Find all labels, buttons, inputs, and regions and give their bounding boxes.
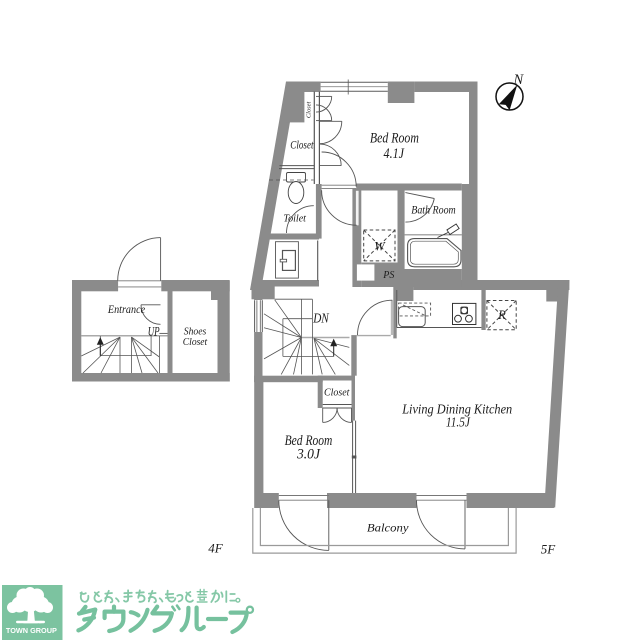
svg-text:Toilet: Toilet	[283, 213, 306, 225]
svg-text:Balcony: Balcony	[367, 523, 410, 535]
svg-text:Bath Room: Bath Room	[411, 205, 456, 217]
svg-text:TOWN GROUP: TOWN GROUP	[6, 628, 57, 635]
svg-text:DN: DN	[312, 312, 329, 327]
svg-text:Closet: Closet	[324, 386, 350, 398]
svg-text:Entrance: Entrance	[107, 304, 145, 316]
svg-text:PS: PS	[382, 270, 394, 281]
svg-text:Closet: Closet	[307, 101, 313, 118]
svg-text:11.5J: 11.5J	[446, 416, 471, 431]
svg-text:W: W	[374, 240, 386, 254]
svg-text:Shoes: Shoes	[184, 326, 207, 337]
svg-text:Closet: Closet	[183, 337, 208, 348]
svg-text:R: R	[497, 308, 506, 322]
svg-text:UP: UP	[148, 324, 160, 339]
svg-text:N: N	[513, 72, 525, 88]
svg-text:3.0J: 3.0J	[296, 447, 320, 463]
svg-text:Closet: Closet	[290, 139, 314, 151]
svg-text:4.1J: 4.1J	[384, 146, 405, 162]
svg-text:Bed Room: Bed Room	[370, 131, 419, 147]
svg-text:5F: 5F	[541, 541, 557, 556]
svg-text:4F: 4F	[208, 541, 224, 556]
